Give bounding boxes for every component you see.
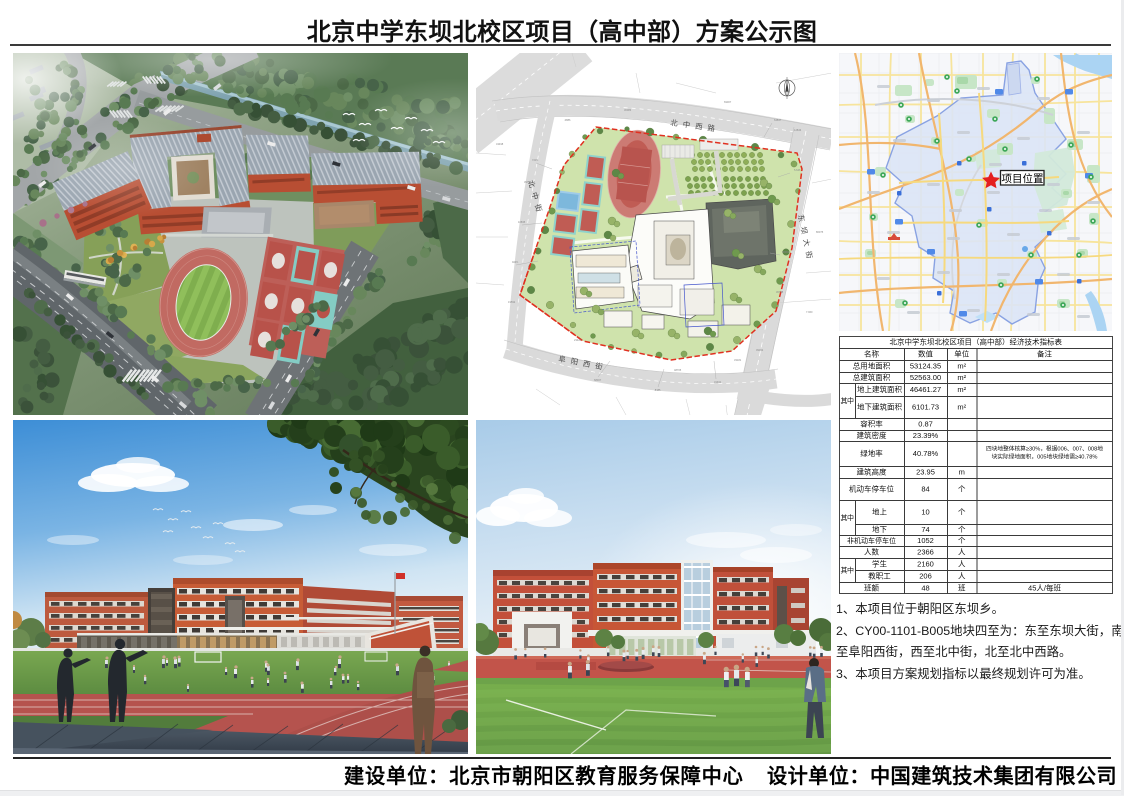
svg-text:数值: 数值 — [918, 349, 933, 359]
svg-text:84: 84 — [921, 485, 929, 494]
svg-text:人: 人 — [958, 560, 966, 569]
svg-text:个: 个 — [958, 525, 966, 534]
svg-text:23.95: 23.95 — [916, 468, 935, 477]
svg-text:19592: 19592 — [508, 300, 516, 304]
svg-text:.8485: .8485 — [654, 388, 661, 392]
svg-text:名称: 名称 — [864, 349, 879, 359]
svg-text:64847: 64847 — [774, 118, 782, 122]
svg-text:40.78%: 40.78% — [913, 449, 939, 458]
svg-text:班: 班 — [958, 583, 966, 593]
svg-text:39743: 39743 — [524, 180, 532, 184]
svg-text:个: 个 — [958, 485, 966, 494]
svg-text:12843: 12843 — [794, 128, 802, 132]
svg-text:206: 206 — [919, 572, 932, 581]
svg-text:69007: 69007 — [724, 100, 732, 104]
svg-text:9245.: 9245. — [512, 260, 519, 264]
svg-text:m: m — [959, 468, 965, 477]
svg-text:68307: 68307 — [594, 378, 602, 382]
svg-text:96062: 96062 — [782, 250, 790, 254]
svg-text:项目位置: 项目位置 — [1002, 172, 1044, 185]
svg-text:容积率: 容积率 — [860, 419, 883, 429]
svg-text:30798: 30798 — [776, 290, 784, 294]
svg-text:地上: 地上 — [872, 507, 887, 517]
svg-text:地上建筑面积: 地上建筑面积 — [857, 384, 902, 394]
svg-text:总用地面积: 总用地面积 — [853, 361, 891, 371]
svg-text:备注: 备注 — [1037, 349, 1053, 359]
svg-text:43498: 43498 — [496, 142, 504, 146]
svg-text:74: 74 — [921, 525, 929, 534]
svg-text:其中: 其中 — [841, 396, 855, 405]
svg-text:6101.73: 6101.73 — [912, 403, 939, 412]
svg-text:地下: 地下 — [872, 524, 887, 534]
svg-text:46461.27: 46461.27 — [910, 385, 941, 394]
svg-text:53124.35: 53124.35 — [910, 362, 941, 371]
svg-text:m²: m² — [957, 373, 966, 382]
svg-text:北京中学东坝北校区项目（高中部）经济技术指标表: 北京中学东坝北校区项目（高中部）经济技术指标表 — [890, 337, 1063, 347]
svg-text:单位: 单位 — [954, 349, 969, 359]
svg-text:m²: m² — [957, 362, 966, 371]
svg-text:块实际绿地面积，005地块绿地需≥40.78%: 块实际绿地面积，005地块绿地需≥40.78% — [992, 453, 1098, 461]
svg-text:班额: 班额 — [864, 583, 879, 593]
svg-text:人: 人 — [958, 548, 966, 557]
svg-text:23.39%: 23.39% — [913, 431, 939, 440]
svg-text:86075: 86075 — [816, 230, 824, 234]
svg-text:其中: 其中 — [841, 513, 855, 522]
svg-text:个: 个 — [958, 508, 966, 517]
svg-text:23420: 23420 — [574, 338, 582, 342]
svg-text:5.646: 5.646 — [794, 168, 801, 172]
svg-text:1052: 1052 — [917, 536, 934, 545]
svg-text:其中: 其中 — [841, 566, 855, 575]
svg-text:学生: 学生 — [872, 559, 887, 569]
svg-text:31941: 31941 — [714, 380, 722, 384]
svg-text:绿地率: 绿地率 — [860, 448, 883, 458]
svg-text:45人/每班: 45人/每班 — [1028, 583, 1061, 593]
svg-text:m²: m² — [957, 403, 966, 412]
svg-text:7215.: 7215. — [532, 158, 539, 162]
svg-text:2160: 2160 — [917, 560, 934, 569]
svg-text:30083: 30083 — [624, 108, 632, 112]
svg-text:人: 人 — [958, 572, 966, 581]
svg-text:48: 48 — [921, 584, 929, 593]
svg-text:人数: 人数 — [864, 547, 879, 557]
svg-text:机动车停车位: 机动车停车位 — [849, 484, 894, 494]
svg-text:总建筑面积: 总建筑面积 — [853, 372, 891, 382]
svg-text:52563.00: 52563.00 — [910, 373, 941, 382]
svg-text:四块地整体核算≥30%，根据006、007、008地: 四块地整体核算≥30%，根据006、007、008地 — [986, 445, 1103, 453]
svg-text:个: 个 — [958, 536, 966, 545]
svg-text:33181: 33181 — [734, 358, 742, 362]
svg-text:建筑高度: 建筑高度 — [857, 467, 887, 477]
svg-text:2366: 2366 — [917, 548, 934, 557]
svg-text:教职工: 教职工 — [868, 571, 891, 581]
svg-text:建筑密度: 建筑密度 — [857, 430, 887, 440]
svg-text:10835: 10835 — [518, 220, 526, 224]
svg-text:地下建筑面积: 地下建筑面积 — [857, 402, 902, 412]
svg-text:10: 10 — [921, 508, 929, 517]
svg-text:7.960: 7.960 — [806, 310, 813, 314]
svg-text:m²: m² — [957, 385, 966, 394]
svg-text:09152: 09152 — [756, 348, 764, 352]
svg-text:非机动车停车位: 非机动车停车位 — [847, 536, 896, 545]
svg-text:48705: 48705 — [674, 368, 682, 372]
svg-text:.0886: .0886 — [564, 118, 571, 122]
svg-text:0.87: 0.87 — [918, 420, 933, 429]
